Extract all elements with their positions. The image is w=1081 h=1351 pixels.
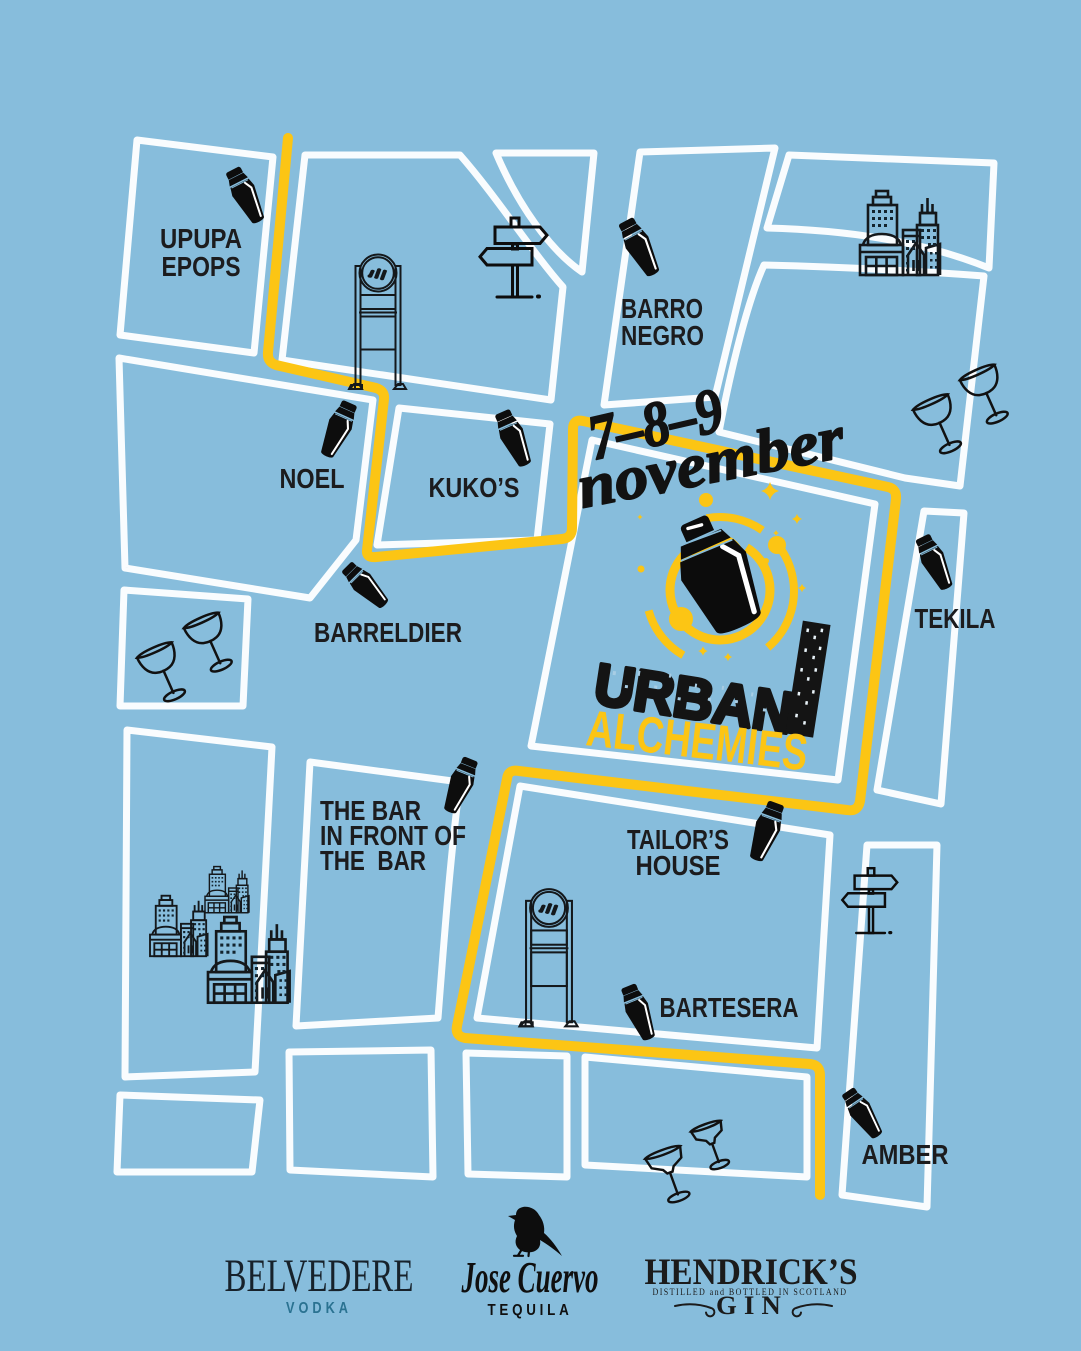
- svg-text:GIN: GIN: [716, 1291, 788, 1320]
- svg-text:NEGRO: NEGRO: [621, 320, 704, 351]
- svg-text:BARTESERA: BARTESERA: [660, 992, 799, 1023]
- svg-text:EPOPS: EPOPS: [162, 251, 241, 282]
- svg-text:TEKILA: TEKILA: [915, 603, 996, 634]
- svg-text:TEQUILA: TEQUILA: [488, 1302, 573, 1319]
- svg-text:Jose Cuervo: Jose Cuervo: [461, 1253, 599, 1302]
- svg-text:THE BAR: THE BAR: [320, 845, 426, 876]
- svg-text:NOEL: NOEL: [280, 463, 345, 494]
- svg-text:KUKO’S: KUKO’S: [429, 472, 520, 503]
- svg-text:AMBER: AMBER: [862, 1139, 949, 1170]
- svg-text:UPUPA: UPUPA: [160, 223, 242, 254]
- svg-text:BELVEDERE: BELVEDERE: [225, 1250, 414, 1302]
- svg-text:HOUSE: HOUSE: [636, 850, 721, 881]
- svg-text:BARRELDIER: BARRELDIER: [314, 617, 462, 648]
- svg-text:VODKA: VODKA: [286, 1300, 352, 1317]
